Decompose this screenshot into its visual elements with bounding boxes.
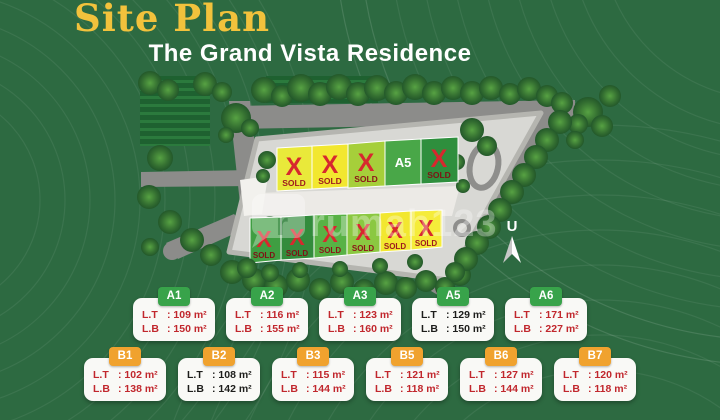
lb-value: : 227 m² bbox=[539, 322, 580, 336]
sold-label: SOLD bbox=[253, 251, 275, 260]
lt-label: L.T bbox=[235, 308, 260, 322]
lot-badge: B7 bbox=[579, 347, 612, 366]
lot-card-b7: B7 L.T: 120 m² L.B: 118 m² bbox=[554, 346, 636, 401]
compass-label: U bbox=[507, 218, 518, 235]
page-title: Site Plan bbox=[74, 0, 270, 40]
sold-x-icon: X bbox=[431, 145, 448, 173]
lb-label: L.B bbox=[563, 382, 588, 396]
lot-card-b6: B6 L.T: 127 m² L.B: 144 m² bbox=[460, 346, 542, 401]
lt-value: : 109 m² bbox=[167, 308, 208, 322]
lot-card-b1: B1 L.T: 102 m² L.B: 138 m² bbox=[84, 346, 166, 401]
lt-label: L.T bbox=[142, 308, 167, 322]
lb-label: L.B bbox=[142, 322, 167, 336]
lot-card-a6: A6 L.T: 171 m² L.B: 227 m² bbox=[505, 286, 587, 341]
lt-value: : 120 m² bbox=[588, 368, 629, 382]
lt-label: L.T bbox=[469, 368, 494, 382]
watermark-logo-letter: r bbox=[276, 206, 288, 242]
lot-card-a2: A2 L.T: 116 m² L.B: 155 m² bbox=[226, 286, 308, 341]
lot-badge: A5 bbox=[437, 287, 470, 306]
lt-value: : 127 m² bbox=[494, 368, 535, 382]
lt-label: L.T bbox=[375, 368, 400, 382]
page-subtitle: The Grand Vista Residence bbox=[110, 40, 510, 68]
lb-label: L.B bbox=[375, 382, 400, 396]
sold-x-icon: X bbox=[358, 149, 375, 177]
cards-row-a: A1 L.T: 109 m² L.B: 150 m² A2 L.T: 116 m… bbox=[0, 286, 720, 341]
lb-label: L.B bbox=[328, 322, 353, 336]
lot-card-b3: B3 L.T: 115 m² L.B: 144 m² bbox=[272, 346, 354, 401]
lt-label: L.T bbox=[421, 308, 446, 322]
lb-value: : 142 m² bbox=[212, 382, 253, 396]
sold-x-icon: X bbox=[286, 153, 303, 181]
lot-badge: A1 bbox=[158, 287, 191, 306]
lot-card-a1: A1 L.T: 109 m² L.B: 150 m² bbox=[133, 286, 215, 341]
lot-badge: B3 bbox=[297, 347, 330, 366]
lb-label: L.B bbox=[421, 322, 446, 336]
lot-badge: B5 bbox=[391, 347, 424, 366]
lb-label: L.B bbox=[514, 322, 539, 336]
lot-badge: B2 bbox=[203, 347, 236, 366]
lot-card-a5: A5 L.T: 129 m² L.B: 150 m² bbox=[412, 286, 494, 341]
lb-value: : 160 m² bbox=[353, 322, 394, 336]
lt-value: : 171 m² bbox=[539, 308, 580, 322]
sold-label: SOLD bbox=[318, 176, 342, 186]
lt-value: : 123 m² bbox=[353, 308, 394, 322]
lot-badge: A3 bbox=[344, 287, 377, 306]
lb-label: L.B bbox=[281, 382, 306, 396]
lot-badge: A2 bbox=[251, 287, 284, 306]
lb-value: : 144 m² bbox=[494, 382, 535, 396]
lot-badge: B1 bbox=[109, 347, 142, 366]
lb-label: L.B bbox=[187, 382, 212, 396]
lt-value: : 102 m² bbox=[118, 368, 159, 382]
cards-row-b: B1 L.T: 102 m² L.B: 138 m² B2 L.T: 108 m… bbox=[0, 346, 720, 401]
lot-card-a3: A3 L.T: 123 m² L.B: 160 m² bbox=[319, 286, 401, 341]
lt-label: L.T bbox=[281, 368, 306, 382]
lb-value: : 144 m² bbox=[306, 382, 347, 396]
sold-label: SOLD bbox=[286, 249, 308, 258]
lt-value: : 129 m² bbox=[446, 308, 487, 322]
lot-name-a5: A5 bbox=[395, 155, 412, 170]
lb-value: : 118 m² bbox=[400, 382, 441, 396]
lb-value: : 150 m² bbox=[446, 322, 487, 336]
lt-label: L.T bbox=[514, 308, 539, 322]
lb-value: : 118 m² bbox=[588, 382, 629, 396]
sold-x-icon: X bbox=[322, 151, 339, 179]
lot-badge: B6 bbox=[485, 347, 518, 366]
lb-label: L.B bbox=[469, 382, 494, 396]
lot-badge: A6 bbox=[530, 287, 563, 306]
road-end-cap bbox=[163, 242, 181, 260]
lot-card-b2: B2 L.T: 108 m² L.B: 142 m² bbox=[178, 346, 260, 401]
watermark-text: rumah123 bbox=[310, 203, 498, 245]
lb-value: : 138 m² bbox=[118, 382, 159, 396]
lb-label: L.B bbox=[235, 322, 260, 336]
lb-value: : 150 m² bbox=[167, 322, 208, 336]
lt-value: : 116 m² bbox=[260, 308, 301, 322]
lot-card-b5: B5 L.T: 121 m² L.B: 118 m² bbox=[366, 346, 448, 401]
lt-label: L.T bbox=[187, 368, 212, 382]
lt-label: L.T bbox=[563, 368, 588, 382]
sold-label: SOLD bbox=[427, 170, 451, 180]
lt-label: L.T bbox=[328, 308, 353, 322]
lb-label: L.B bbox=[93, 382, 118, 396]
sold-label: SOLD bbox=[354, 174, 378, 184]
lb-value: : 155 m² bbox=[260, 322, 301, 336]
lt-value: : 115 m² bbox=[306, 368, 347, 382]
lt-value: : 121 m² bbox=[400, 368, 441, 382]
sold-label: SOLD bbox=[319, 246, 341, 255]
sold-label: SOLD bbox=[352, 244, 374, 253]
lt-value: : 108 m² bbox=[212, 368, 253, 382]
road-left-branch bbox=[141, 170, 254, 187]
lt-label: L.T bbox=[93, 368, 118, 382]
sold-label: SOLD bbox=[282, 178, 306, 188]
